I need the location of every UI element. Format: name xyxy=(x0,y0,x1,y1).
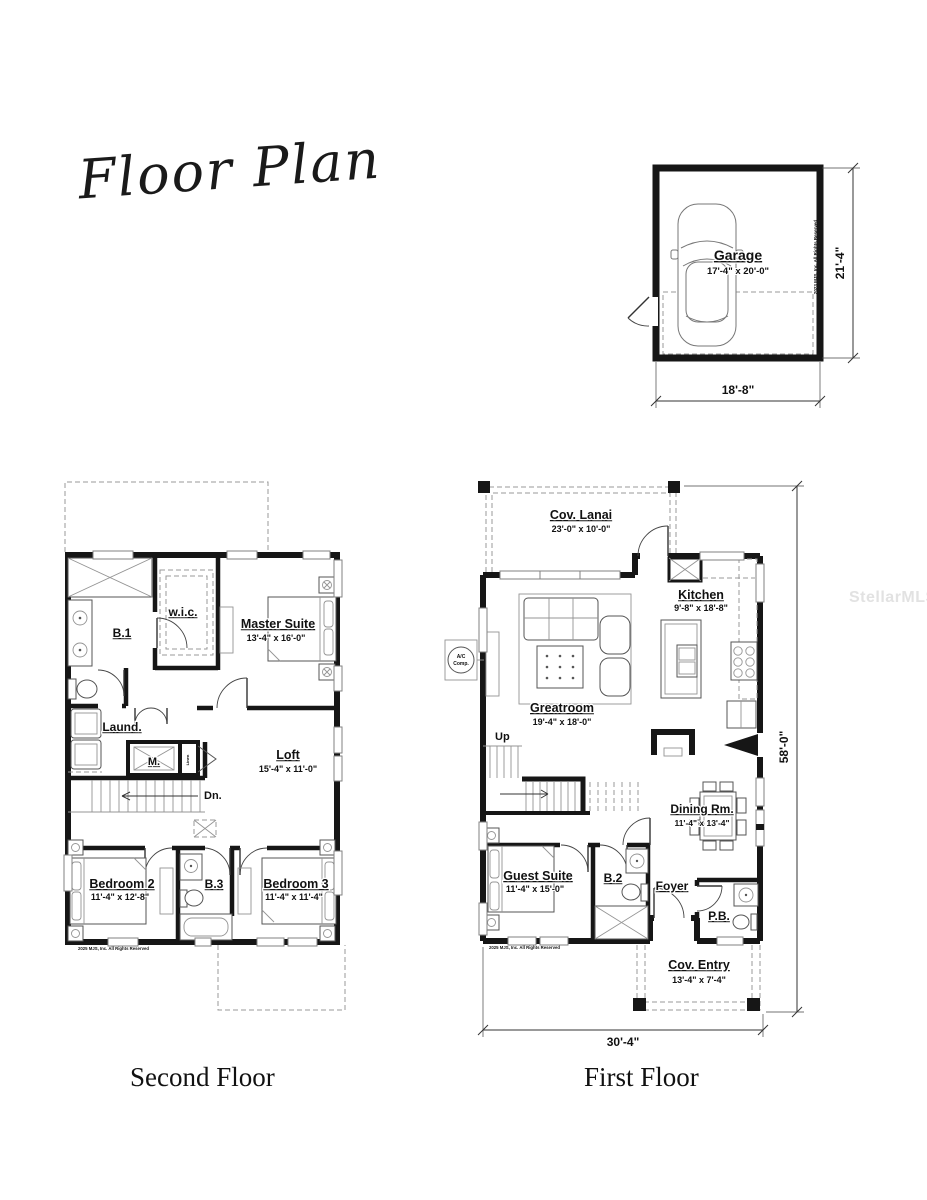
media-console xyxy=(486,632,499,696)
room-dims-guest: 11'-4" x 15'-0" xyxy=(506,884,564,894)
b2-fixtures xyxy=(595,849,648,939)
room-label-pb: P.B. xyxy=(708,909,730,923)
second-floor-plan: B.1 w.i.c. Master Suite 13'-4" x 16'-0" … xyxy=(40,460,370,1030)
stairs-up-icon xyxy=(483,746,638,813)
garage-entry-door xyxy=(628,297,649,326)
toilet-room-door xyxy=(98,670,124,696)
master-door xyxy=(217,678,247,708)
ac-label-2: Comp. xyxy=(453,661,469,667)
room-label-wic: w.i.c. xyxy=(168,605,198,619)
room-label-bedroom2: Bedroom 2 xyxy=(89,877,154,891)
garage-copyright: 2023 MJS, Inc. All Rights Reserved xyxy=(813,220,818,295)
room-label-garage: Garage xyxy=(714,247,762,263)
room-label-bedroom3: Bedroom 3 xyxy=(263,877,328,891)
greatroom-furniture xyxy=(486,594,631,704)
stairs-down-icon xyxy=(68,780,205,812)
room-label-loft: Loft xyxy=(276,748,300,762)
room-label-greatroom: Greatroom xyxy=(530,701,594,715)
foyer-opening-arc xyxy=(623,818,650,845)
double-vanity-icon xyxy=(68,600,92,666)
first-floor-label: First Floor xyxy=(584,1062,699,1093)
room-label-kitchen: Kitchen xyxy=(678,588,724,602)
room-label-linen: Linen xyxy=(185,754,190,765)
toilet-icon xyxy=(68,679,97,699)
room-dims-greatroom: 19'-4" x 18'-0" xyxy=(533,717,592,727)
ac-compressor: A/C Comp. xyxy=(445,640,484,680)
stairs-down-label: Dn. xyxy=(204,790,222,802)
floor-plan-sheet: Floor Plan StellarMLS Garage 17'-4" x 20… xyxy=(0,0,927,1200)
dining-table-icon xyxy=(690,782,746,850)
shower-icon xyxy=(68,558,152,597)
lanai-door xyxy=(638,526,668,556)
height-dim-text: 58'-0" xyxy=(777,731,791,764)
powder-bath-door xyxy=(697,886,722,911)
attic-hatch xyxy=(194,820,216,837)
room-label-guest: Guest Suite xyxy=(503,869,573,883)
b2-door xyxy=(600,845,627,872)
side-entry-door xyxy=(724,734,758,756)
page-title: Floor Plan xyxy=(76,127,383,211)
roof-outline-bottom xyxy=(218,945,345,1010)
kitchen-sink-icon xyxy=(677,645,697,677)
fridge-icon xyxy=(727,701,756,728)
room-dims-master: 13'-4" x 16'-0" xyxy=(247,633,306,643)
garage-height-dim-text: 21'-4" xyxy=(833,247,847,280)
garage-height-dimension: 21'-4" xyxy=(822,163,860,363)
garage-width-dim-text: 18'-8" xyxy=(722,383,755,397)
stairs-up-label: Up xyxy=(495,731,510,743)
second-floor-copyright: 2025 MJS, Inc. All Rights Reserved xyxy=(78,946,149,951)
second-floor-label: Second Floor xyxy=(130,1062,275,1093)
sofa-icon xyxy=(524,598,598,640)
chase xyxy=(654,732,692,755)
pb-fixtures xyxy=(733,884,758,930)
bedroom2-door xyxy=(145,848,172,875)
room-label-lanai: Cov. Lanai xyxy=(550,508,612,522)
master-dresser xyxy=(220,607,233,653)
room-dims-loft: 15'-4" x 11'-0" xyxy=(259,764,317,774)
kitchen-fixtures xyxy=(661,559,757,728)
guest-suite-door xyxy=(561,845,588,872)
room-label-mech: M. xyxy=(148,756,160,768)
b3-fixtures xyxy=(180,854,232,940)
armchair-icon-2 xyxy=(600,658,630,696)
room-label-b3: B.3 xyxy=(205,877,224,891)
width-dim-text: 30'-4" xyxy=(607,1035,640,1049)
room-dims-bedroom3: 11'-4" x 11'-4" xyxy=(265,892,323,902)
roof-outline-top xyxy=(65,482,268,552)
garage-width-dimension: 18'-8" xyxy=(651,362,825,408)
wic-door xyxy=(157,618,187,648)
room-label-foyer: Foyer xyxy=(656,879,689,893)
room-dims-bedroom2: 11'-4" x 12'-8" xyxy=(91,892,149,902)
room-label-b2: B.2 xyxy=(604,871,623,885)
room-dims-entry: 13'-4" x 7'-4" xyxy=(672,975,726,985)
garage-plan: Garage 17'-4" x 20'-0" 2023 MJS, Inc. Al… xyxy=(615,135,925,420)
room-dims-kitchen: 9'-8" x 18'-8" xyxy=(674,603,728,613)
chase-shelf xyxy=(664,748,682,756)
room-label-entry: Cov. Entry xyxy=(668,958,730,972)
ac-label-1: A/C xyxy=(457,654,466,660)
b3-door xyxy=(205,848,230,875)
pantry xyxy=(669,558,755,581)
garage-door-opening xyxy=(649,297,658,326)
room-label-laundry: Laund. xyxy=(102,720,141,734)
first-floor-plan: A/C Comp. Cov. Lanai 23'-0" x 10'-0" Kit… xyxy=(430,460,825,1060)
room-dims-lanai: 23'-0" x 10'-0" xyxy=(552,524,611,534)
watermark: StellarMLS xyxy=(849,589,927,607)
room-label-master: Master Suite xyxy=(241,617,315,631)
room-label-dining: Dining Rm. xyxy=(670,802,733,816)
room-dims-garage: 17'-4" x 20'-0" xyxy=(707,266,769,277)
room-label-b1: B.1 xyxy=(113,626,132,640)
room-dims-dining: 11'-4" x 13'-4" xyxy=(674,818,729,828)
armchair-icon xyxy=(600,616,630,654)
washer-dryer-icon xyxy=(68,709,102,772)
first-floor-copyright: 2025 MJS, Inc. All Rights Reserved xyxy=(489,945,560,950)
